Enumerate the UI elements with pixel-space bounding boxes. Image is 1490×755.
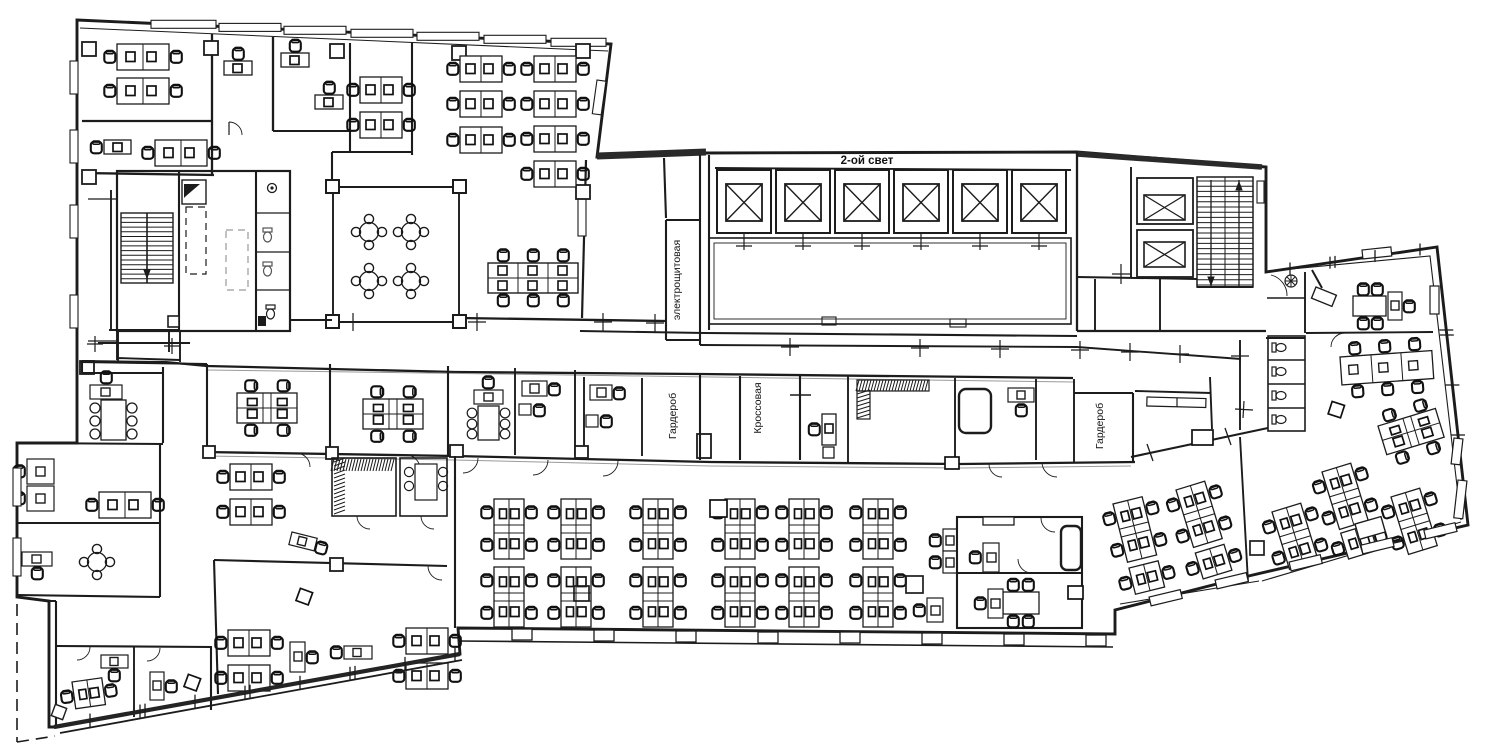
- svg-text:Кроссовая: Кроссовая: [752, 382, 764, 433]
- svg-text:Гардероб: Гардероб: [667, 393, 679, 439]
- svg-text:электрощитовая: электрощитовая: [671, 240, 683, 320]
- svg-text:Гардероб: Гардероб: [1094, 403, 1106, 449]
- svg-text:2-ой свет: 2-ой свет: [841, 155, 894, 167]
